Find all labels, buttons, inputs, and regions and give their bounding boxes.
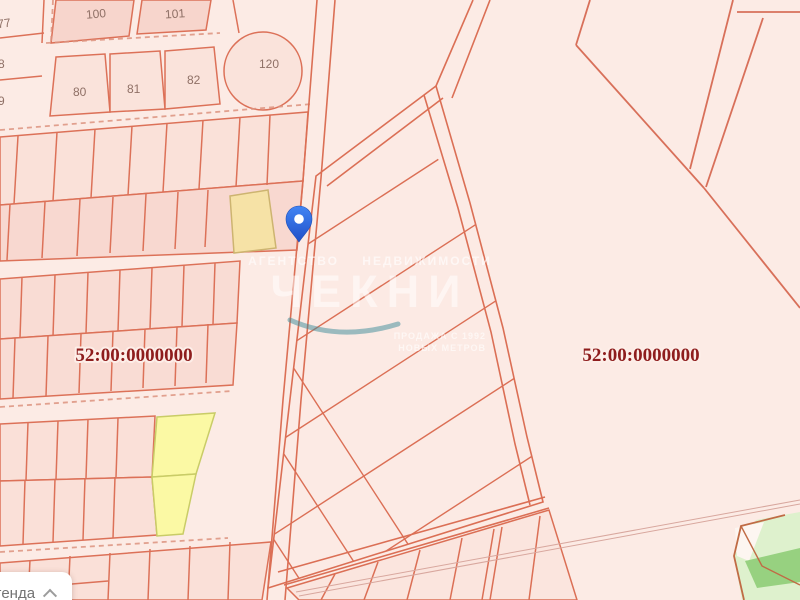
chevron-up-icon (43, 589, 57, 600)
cadastral-quarter-label-right: 52:00:0000000 (582, 345, 699, 366)
cadastral-quarter-label-left: 52:00:0000000 (75, 345, 192, 366)
parcel-label-101: 101 (165, 6, 186, 21)
parcel-label-80: 80 (73, 85, 87, 99)
parcel-label-81: 81 (127, 82, 141, 96)
legend-toggle-button[interactable]: Легенда (0, 572, 72, 600)
parcel-label-8: 8 (0, 57, 5, 71)
parcel-label-9: 9 (0, 94, 5, 108)
parcel-label-82: 82 (187, 73, 201, 87)
cadastral-map-svg[interactable]: 77 8 9 100 101 80 81 82 120 52:00:000000… (0, 0, 800, 600)
cadastral-map-viewport[interactable]: 77 8 9 100 101 80 81 82 120 52:00:000000… (0, 0, 800, 600)
green-zone (734, 512, 800, 600)
parcel-label-100: 100 (85, 6, 106, 22)
highlighted-muted-yellow-parcel[interactable] (230, 190, 276, 253)
legend-label: Легенда (0, 585, 35, 600)
parcel-label-120: 120 (259, 57, 279, 71)
